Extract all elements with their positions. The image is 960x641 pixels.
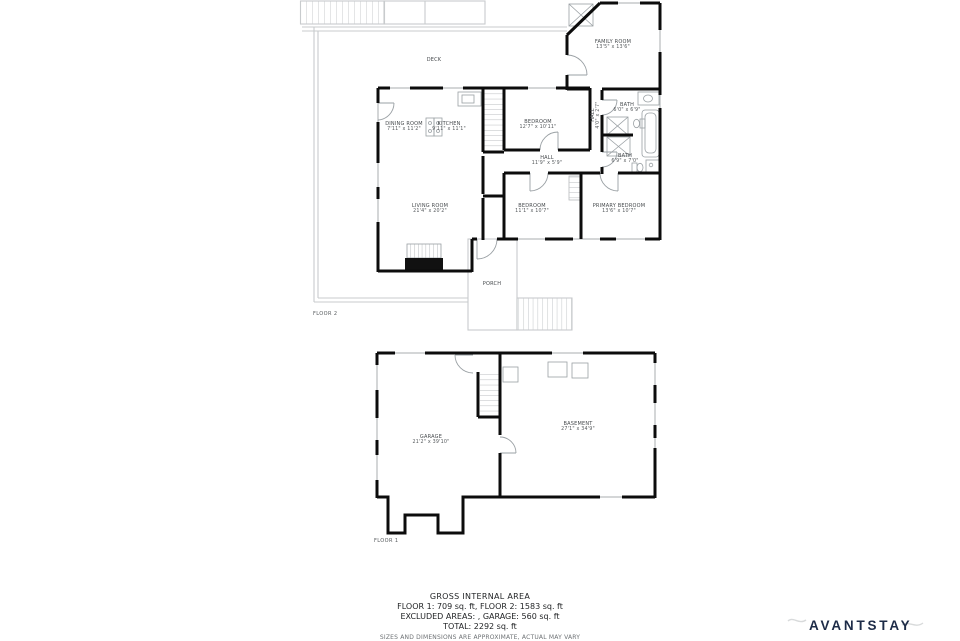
porch-stairs [517, 298, 572, 330]
fireplace [405, 244, 443, 271]
room-label-bedroom-bottom: BEDROOM 11'1" x 10'7" [515, 203, 549, 215]
room-label-basement: BASEMENT 27'1" x 34'9" [561, 421, 595, 433]
room-label-deck: DECK [427, 57, 442, 63]
room-label-garage: GARAGE 21'2" x 39'10" [412, 434, 449, 446]
room-label-kitchen: KITCHEN 9'11" x 11'1" [432, 121, 466, 133]
floor1-tag: FLOOR 1 [374, 538, 398, 544]
room-dims: 9'11" x 11'1" [432, 127, 466, 133]
area-summary: GROSS INTERNAL AREA FLOOR 1: 709 sq. ft,… [397, 592, 563, 632]
summary-title: GROSS INTERNAL AREA [397, 592, 563, 602]
room-dims: 4'0" x 2'7" [596, 101, 602, 128]
room-label-primary-bedroom: PRIMARY BEDROOM 13'6" x 10'7" [593, 203, 646, 215]
room-label-hall-vertical: HALL 4'0" x 2'7" [590, 101, 602, 128]
room-dims: 12'7" x 10'11" [519, 125, 556, 131]
room-dims: 13'6" x 10'7" [593, 209, 646, 215]
room-label-family-room: FAMILY ROOM 13'5" x 13'6" [595, 39, 631, 51]
room-label-porch: PORCH [483, 281, 501, 287]
interior-stairs [480, 90, 580, 416]
room-label-bath-top: BATH 6'0" x 6'9" [613, 102, 640, 114]
basement-storage-boxes [503, 362, 588, 382]
room-dims: 21'2" x 39'10" [412, 440, 449, 446]
room-dims: 7'11" x 11'2" [385, 127, 423, 133]
room-dims: 11'1" x 10'7" [515, 209, 549, 215]
closet-x-boxes [569, 4, 630, 156]
room-label-dining-room: DINING ROOM 7'11" x 11'2" [385, 121, 423, 133]
room-label-bath-bottom: BATH 6'9" x 7'0" [611, 153, 638, 165]
deck-outline [302, 1, 567, 330]
summary-floors: FLOOR 1: 709 sq. ft, FLOOR 2: 1583 sq. f… [397, 602, 563, 612]
room-dims: 11'9" x 5'9" [532, 161, 563, 167]
exterior-stairs-top [301, 1, 385, 24]
room-dims: 21'4" x 20'2" [412, 209, 448, 215]
room-name: DECK [427, 57, 442, 63]
room-dims: 27'1" x 34'9" [561, 427, 595, 433]
room-label-bedroom-top: BEDROOM 12'7" x 10'11" [519, 119, 556, 131]
floor-plan-page: DECK FAMILY ROOM 13'5" x 13'6" DINING RO… [0, 0, 960, 640]
summary-total: TOTAL: 2292 sq. ft [397, 622, 563, 632]
summary-excluded: EXCLUDED AREAS: , GARAGE: 560 sq. ft [397, 612, 563, 622]
avantstay-logo: AVANTSTAY [809, 618, 912, 633]
room-dims: 6'9" x 7'0" [611, 159, 638, 165]
room-dims: 6'0" x 6'9" [613, 108, 640, 114]
room-name: PORCH [483, 281, 501, 287]
floor2-tag: FLOOR 2 [313, 311, 337, 317]
floor-plan-drawing [0, 0, 960, 640]
room-label-hall: HALL 11'9" x 5'9" [532, 155, 563, 167]
room-label-living-room: LIVING ROOM 21'4" x 20'2" [412, 203, 448, 215]
room-dims: 13'5" x 13'6" [595, 45, 631, 51]
